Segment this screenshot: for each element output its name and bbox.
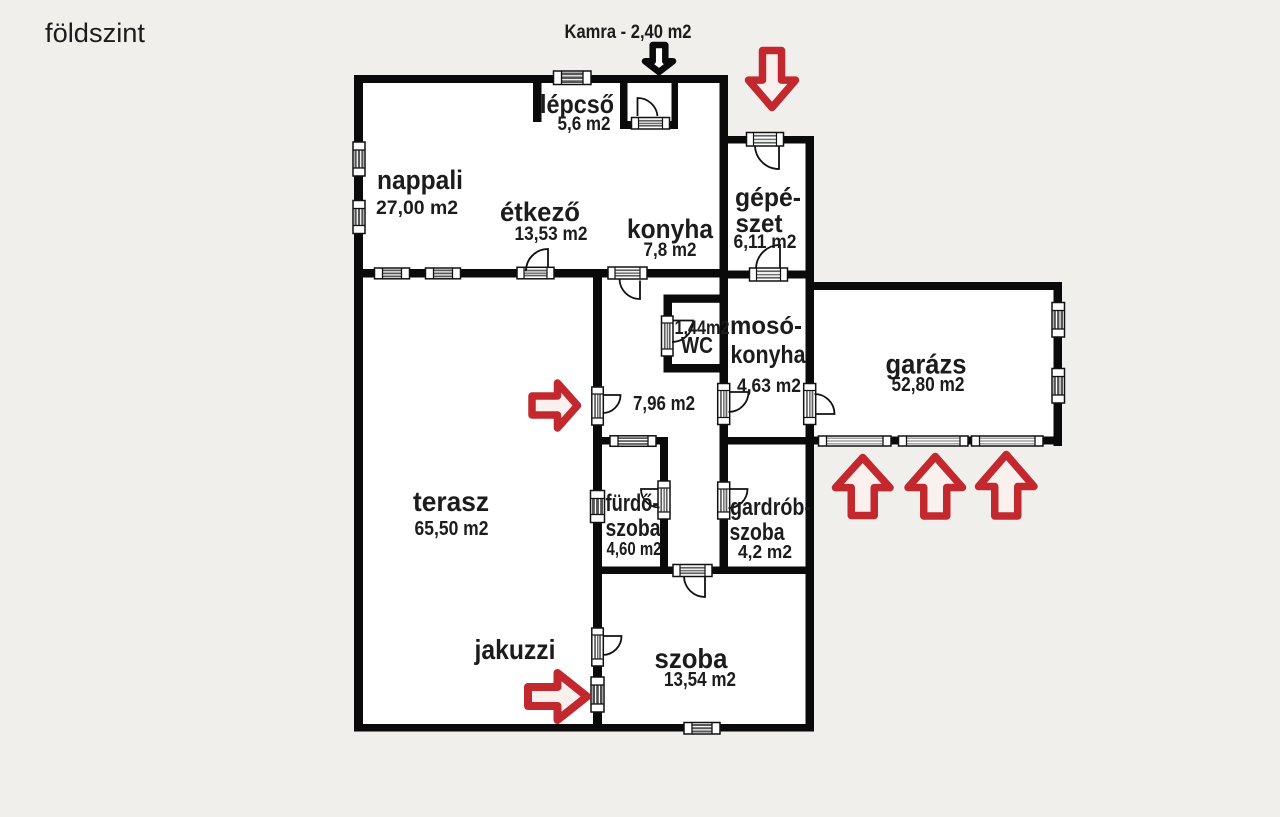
svg-text:13,54 m2: 13,54 m2 bbox=[664, 669, 736, 691]
svg-text:13,53 m2: 13,53 m2 bbox=[515, 223, 588, 245]
svg-text:Kamra - 2,40 m2: Kamra - 2,40 m2 bbox=[565, 21, 692, 43]
svg-text:27,00 m2: 27,00 m2 bbox=[376, 197, 458, 219]
svg-text:gardrób-: gardrób- bbox=[730, 494, 811, 521]
svg-text:földszint: földszint bbox=[45, 18, 145, 48]
svg-text:nappali: nappali bbox=[377, 165, 463, 195]
svg-text:4,2 m2: 4,2 m2 bbox=[738, 541, 792, 562]
svg-text:65,50 m2: 65,50 m2 bbox=[415, 518, 489, 540]
svg-text:konyha: konyha bbox=[731, 341, 807, 369]
svg-text:mosó-: mosó- bbox=[730, 312, 802, 340]
svg-text:fürdő-: fürdő- bbox=[606, 490, 659, 517]
svg-text:terasz: terasz bbox=[413, 486, 489, 517]
svg-text:4,63 m2: 4,63 m2 bbox=[737, 375, 801, 397]
svg-text:jakuzzi: jakuzzi bbox=[474, 634, 556, 665]
svg-text:6,11 m2: 6,11 m2 bbox=[734, 231, 797, 253]
svg-text:5,6 m2: 5,6 m2 bbox=[558, 114, 611, 135]
svg-text:52,80 m2: 52,80 m2 bbox=[892, 374, 965, 396]
svg-text:7,96 m2: 7,96 m2 bbox=[633, 393, 695, 415]
svg-text:WC: WC bbox=[681, 332, 713, 358]
svg-text:7,8 m2: 7,8 m2 bbox=[644, 239, 697, 261]
svg-text:4,60 m2: 4,60 m2 bbox=[607, 538, 662, 559]
